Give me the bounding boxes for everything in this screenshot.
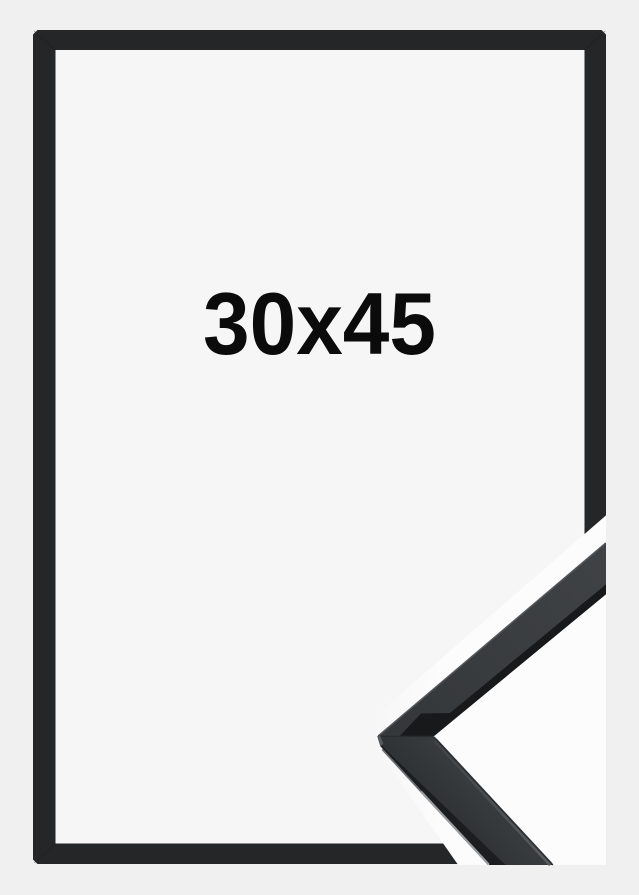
svg-text:30x45: 30x45 <box>203 274 436 373</box>
